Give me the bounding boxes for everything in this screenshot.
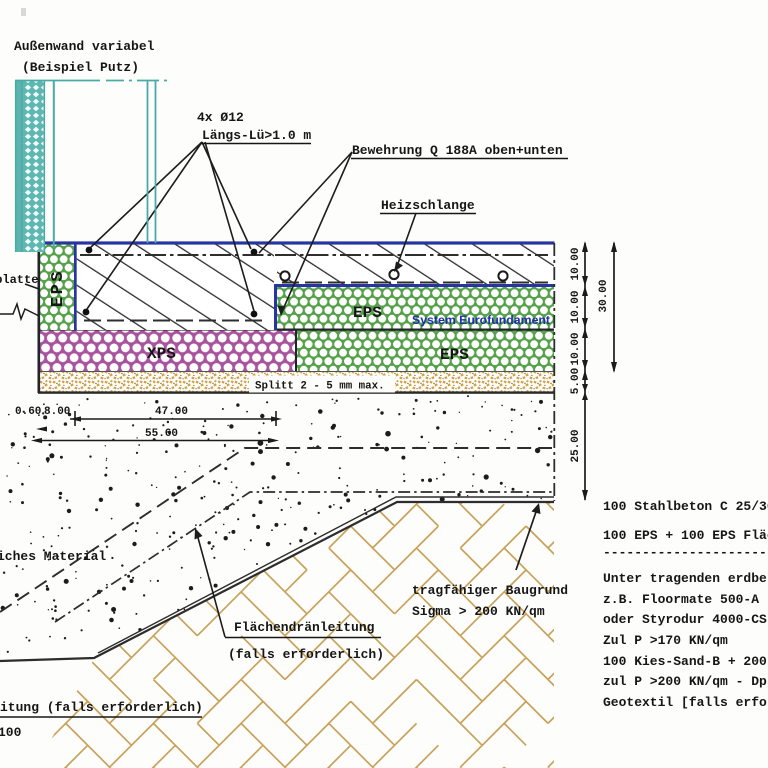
svg-text:100: 100 bbox=[0, 725, 22, 740]
svg-text:(Beispiel Putz): (Beispiel Putz) bbox=[22, 60, 139, 75]
svg-text:4x Ø12: 4x Ø12 bbox=[197, 110, 244, 125]
svg-text:zul P >200 KN/qm - Dpr 100: zul P >200 KN/qm - Dpr 100 bbox=[603, 674, 768, 689]
svg-text:tragfähiger Baugrund: tragfähiger Baugrund bbox=[412, 583, 568, 598]
svg-text:Unter tragenden erdberührten: Unter tragenden erdberührten bbox=[603, 571, 768, 586]
svg-text:Geotextil [falls erforderlich]: Geotextil [falls erforderlich] bbox=[603, 695, 768, 710]
svg-text:100 EPS + 100 EPS Flächenheiz: 100 EPS + 100 EPS Flächenheiz bbox=[603, 528, 768, 543]
svg-text:EPS: EPS bbox=[440, 346, 469, 364]
svg-text:----------------------: ---------------------- bbox=[603, 545, 768, 560]
svg-text:10.00: 10.00 bbox=[570, 290, 582, 323]
svg-text:5.00: 5.00 bbox=[570, 368, 582, 394]
svg-text:itung (falls erforderlich): itung (falls erforderlich) bbox=[0, 700, 203, 715]
svg-text:System Eurofundament: System Eurofundament bbox=[412, 313, 550, 327]
svg-text:XPS: XPS bbox=[147, 345, 176, 363]
svg-text:10.00: 10.00 bbox=[570, 247, 582, 280]
svg-text:EPS: EPS bbox=[353, 304, 382, 322]
svg-text:Außenwand variabel: Außenwand variabel bbox=[14, 39, 155, 54]
svg-text:8.00: 8.00 bbox=[44, 406, 70, 418]
svg-text:(falls erforderlich): (falls erforderlich) bbox=[228, 647, 384, 662]
svg-text:lplatte: lplatte bbox=[0, 273, 38, 287]
svg-text:oder Styrodur 4000-CS: oder Styrodur 4000-CS bbox=[603, 612, 767, 627]
svg-text:25.00: 25.00 bbox=[570, 429, 582, 462]
svg-text:Sigma > 200 KN/qm: Sigma > 200 KN/qm bbox=[412, 604, 545, 619]
svg-text:55.60: 55.60 bbox=[145, 428, 178, 440]
svg-text:iches Material: iches Material bbox=[0, 549, 106, 564]
svg-text:30.00: 30.00 bbox=[598, 279, 610, 312]
svg-text:EPS: EPS bbox=[49, 269, 68, 307]
svg-text:Heizschlange: Heizschlange bbox=[381, 198, 475, 213]
svg-text:Zul P >170 KN/qm: Zul P >170 KN/qm bbox=[603, 633, 728, 648]
svg-text:0.60: 0.60 bbox=[15, 406, 41, 418]
svg-text:Splitt 2 - 5 mm max.: Splitt 2 - 5 mm max. bbox=[255, 381, 385, 393]
svg-text:100 Kies-Sand-B + 200 Kies: 100 Kies-Sand-B + 200 Kies bbox=[603, 654, 768, 669]
svg-text:Flächendränleitung: Flächendränleitung bbox=[234, 620, 375, 635]
svg-text:Bewehrung Q 188A oben+unten: Bewehrung Q 188A oben+unten bbox=[352, 143, 563, 158]
svg-text:47.00: 47.00 bbox=[155, 406, 188, 418]
svg-text:z.B. Floormate 500-A: z.B. Floormate 500-A bbox=[603, 592, 759, 607]
svg-text:Längs-Lü>1.0 m: Längs-Lü>1.0 m bbox=[202, 128, 311, 143]
svg-text:10.00: 10.00 bbox=[570, 332, 582, 365]
svg-text:100 Stahlbeton C 25/30: 100 Stahlbeton C 25/30 bbox=[603, 499, 768, 514]
